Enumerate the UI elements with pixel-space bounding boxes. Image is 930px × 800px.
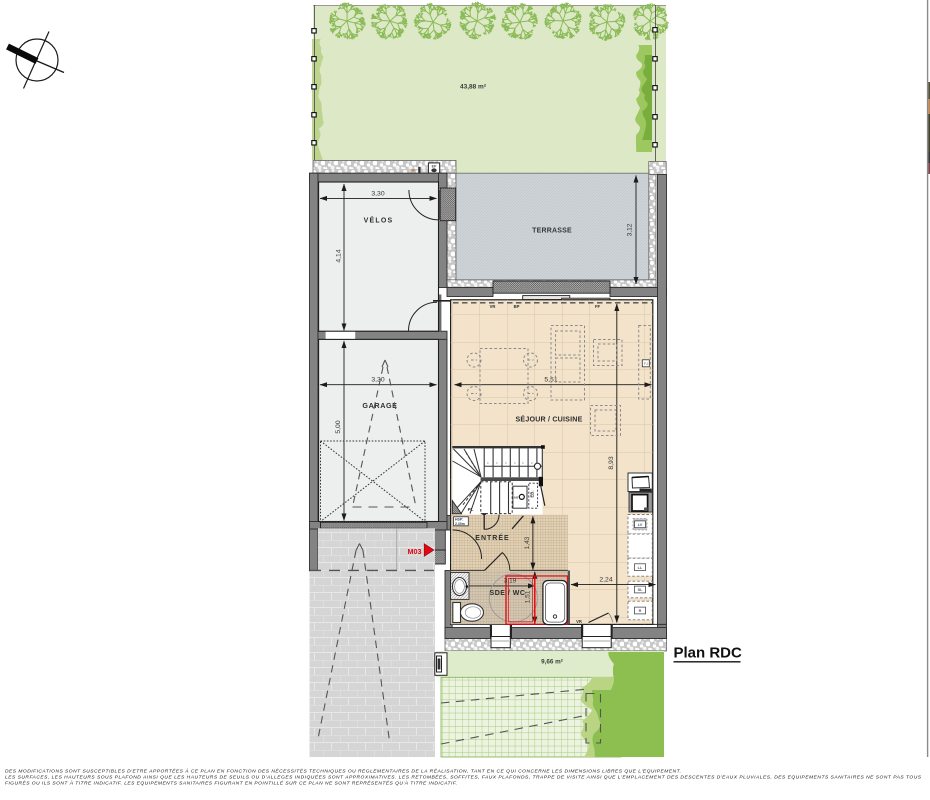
svg-text:3,30: 3,30 — [371, 190, 384, 197]
svg-text:BP: BP — [411, 168, 416, 172]
svg-text:DES MODIFICATIONS SONT SUSCEPT: DES MODIFICATIONS SONT SUSCEPTIBLES D'ET… — [5, 768, 681, 775]
svg-text:ENTRÉE: ENTRÉE — [475, 533, 509, 542]
svg-text:R: R — [639, 609, 642, 613]
svg-text:TERRASSE: TERRASSE — [532, 228, 572, 235]
svg-text:LES SURFACES, LES HAUTEURS SOU: LES SURFACES, LES HAUTEURS SOUS PLAFOND … — [5, 773, 922, 780]
svg-text:LL: LL — [638, 566, 643, 570]
svg-text:4,14: 4,14 — [336, 249, 343, 262]
svg-text:EP: EP — [432, 165, 437, 169]
svg-text:3,12: 3,12 — [627, 223, 634, 236]
svg-text:EB.: EB. — [529, 491, 534, 498]
svg-text:FF: FF — [595, 304, 601, 309]
svg-text:Plan RDC: Plan RDC — [674, 645, 743, 662]
svg-text:43,88 m²: 43,88 m² — [460, 84, 487, 91]
svg-text:SDE / WC: SDE / WC — [490, 590, 526, 597]
svg-text:8,93: 8,93 — [608, 456, 615, 469]
svg-text:2,24: 2,24 — [599, 576, 612, 583]
svg-text:SL: SL — [638, 588, 644, 592]
svg-text:AO: AO — [514, 495, 519, 499]
svg-text:VÉLOS: VÉLOS — [364, 216, 394, 225]
svg-text:FIGURÉS OU ILS SONT À TITRE IN: FIGURÉS OU ILS SONT À TITRE INDICATIF. L… — [5, 779, 457, 786]
svg-text:VR: VR — [576, 619, 582, 624]
svg-text:VR: VR — [490, 304, 496, 309]
svg-text:2,30m: 2,30m — [455, 522, 465, 526]
svg-text:9,66 m²: 9,66 m² — [541, 659, 563, 666]
svg-text:LV: LV — [638, 523, 643, 527]
svg-text:1,43: 1,43 — [524, 536, 531, 549]
svg-text:3,19: 3,19 — [504, 577, 517, 584]
svg-text:GARAGE: GARAGE — [362, 401, 397, 410]
svg-text:PL: PL — [468, 507, 474, 512]
svg-text:5,00: 5,00 — [335, 420, 342, 433]
svg-text:3,30: 3,30 — [371, 377, 384, 384]
svg-text:1,51: 1,51 — [525, 590, 532, 603]
svg-text:M03: M03 — [408, 547, 422, 556]
svg-text:FJ: FJ — [644, 362, 648, 366]
svg-text:BP: BP — [514, 304, 520, 309]
svg-text:SÉJOUR / CUISINE: SÉJOUR / CUISINE — [515, 415, 582, 424]
